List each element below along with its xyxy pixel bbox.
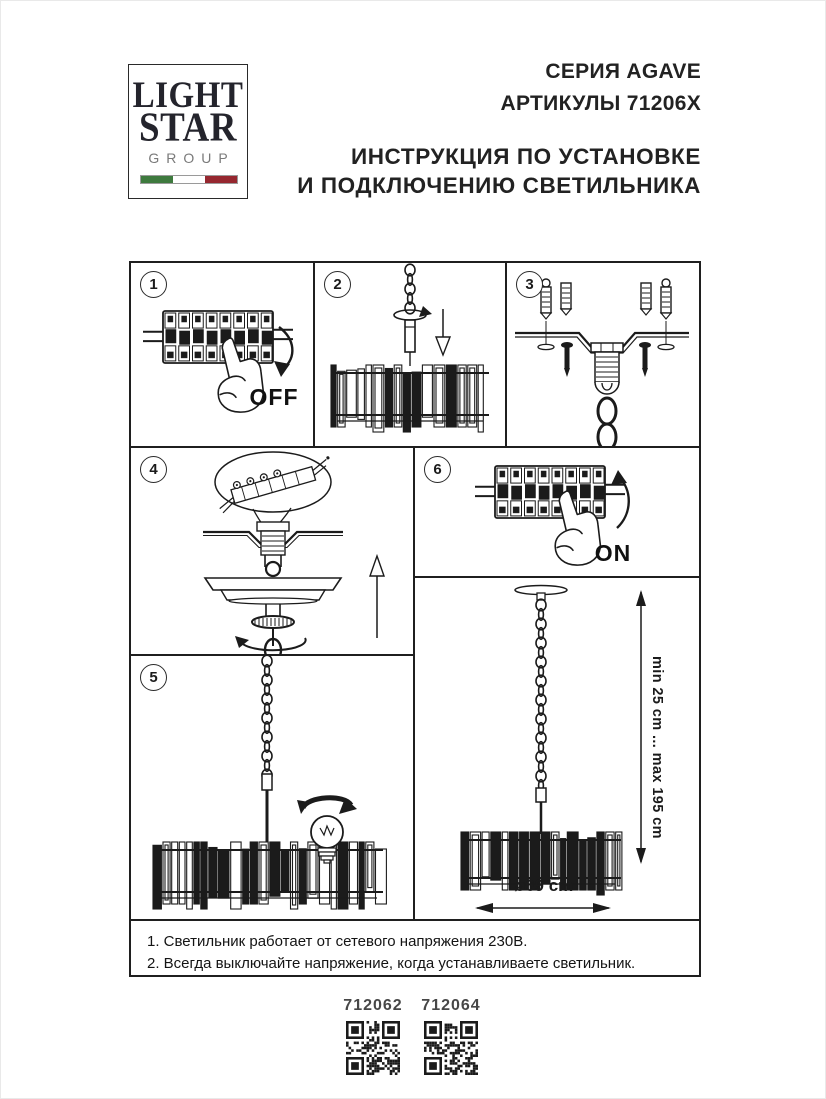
step-3-panel: 3	[505, 261, 701, 448]
instruction-title: ИНСТРУКЦИЯ ПО УСТАНОВКЕ И ПОДКЛЮЧЕНИЮ СВ…	[297, 142, 701, 200]
step-number-badge: 3	[516, 271, 543, 298]
step-1-panel: 1 OFF	[129, 261, 315, 448]
instruction-leaflet-page: LIGHT STAR GROUP СЕРИЯ AGAVE АРТИКУЛЫ 71…	[0, 0, 826, 1099]
qr-label-712064: 712064	[406, 997, 496, 1015]
lightstar-logo: LIGHT STAR GROUP	[128, 64, 248, 199]
step-number-badge: 4	[140, 456, 167, 483]
wiring-canopy-illustration	[131, 448, 413, 654]
step-2-panel: 2	[313, 261, 507, 448]
notes-panel: 1. Светильник работает от сетевого напря…	[129, 919, 701, 977]
qr-code-712064	[424, 1021, 478, 1075]
step-5-panel: 5	[129, 654, 415, 921]
qr-label-712062: 712062	[328, 997, 418, 1015]
circuit-breaker-on-illustration	[415, 448, 699, 576]
step-4-panel: 4	[129, 446, 415, 656]
article-numbers: АРТИКУЛЫ 71206X	[297, 88, 701, 120]
step-number-badge: 5	[140, 664, 167, 691]
height-range-label: min 25 cm ... max 195 cm	[649, 656, 665, 826]
step-6-panel: 6 ON	[413, 446, 701, 578]
series-name: СЕРИЯ AGAVE	[297, 56, 701, 88]
diameter-label: ø69 cm	[463, 876, 625, 896]
header: СЕРИЯ AGAVE АРТИКУЛЫ 71206X ИНСТРУКЦИЯ П…	[297, 56, 701, 200]
step-number-badge: 6	[424, 456, 451, 483]
note-line-2: 2. Всегда выключайте напряжение, когда у…	[147, 953, 699, 975]
qr-code-712062	[346, 1021, 400, 1075]
off-label: OFF	[243, 384, 305, 411]
dimensions-panel: min 25 cm ... max 195 cm ø69 cm	[413, 576, 701, 921]
logo-word-star: STAR	[129, 109, 247, 146]
logo-word-group: GROUP	[129, 150, 247, 166]
instruction-grid: 1 OFF 2 3 4 6 ON min 25 cm ... max 195 c…	[129, 261, 701, 977]
on-label: ON	[583, 540, 643, 567]
italian-flag-stripe	[140, 175, 238, 184]
note-line-1: 1. Светильник работает от сетевого напря…	[147, 931, 699, 953]
bulb-install-illustration	[131, 656, 413, 919]
step-number-badge: 1	[140, 271, 167, 298]
step-number-badge: 2	[324, 271, 351, 298]
